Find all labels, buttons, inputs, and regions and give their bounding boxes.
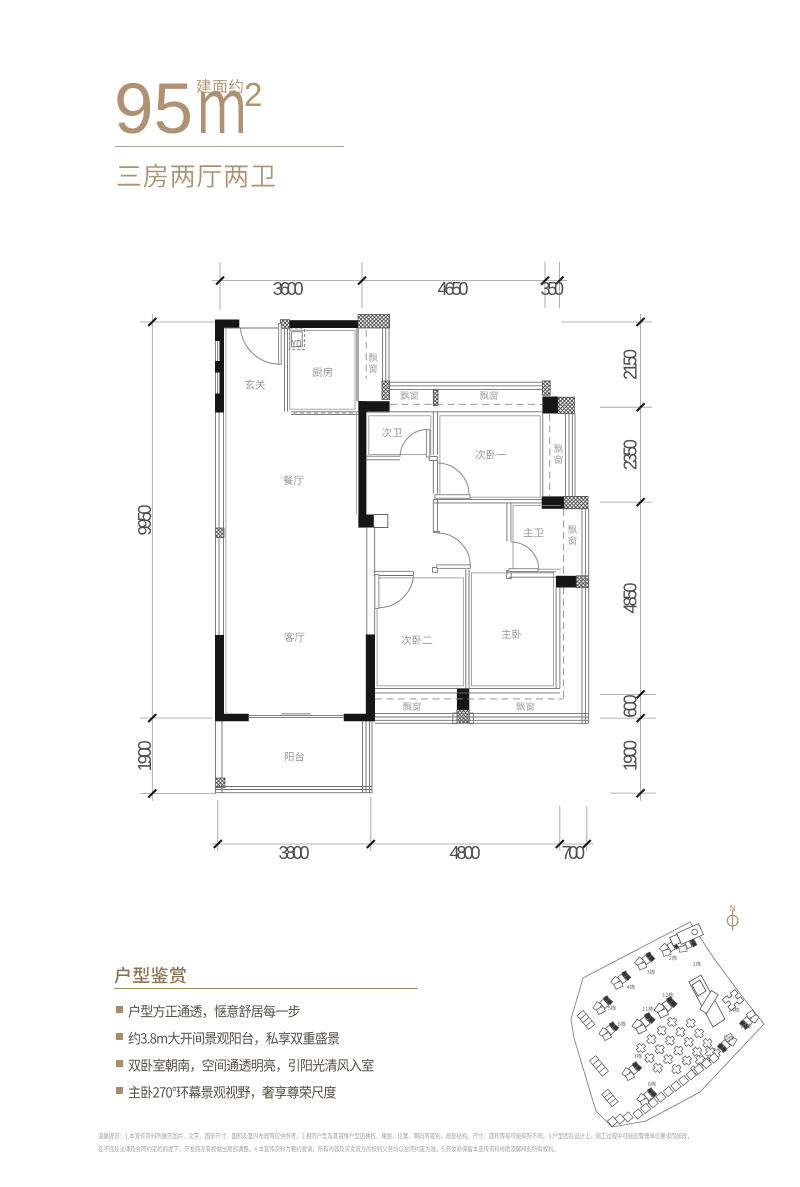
svg-text:9950: 9950 bbox=[135, 505, 155, 536]
svg-text:1900: 1900 bbox=[135, 740, 155, 771]
svg-text:4800: 4800 bbox=[450, 843, 481, 863]
svg-text:YD: YD bbox=[292, 338, 302, 350]
svg-text:4650: 4650 bbox=[438, 279, 469, 299]
svg-text:4850: 4850 bbox=[621, 583, 641, 614]
svg-text:350: 350 bbox=[541, 279, 565, 299]
svg-text:2150: 2150 bbox=[621, 349, 641, 380]
svg-text:1900: 1900 bbox=[621, 740, 641, 771]
svg-text:700: 700 bbox=[562, 843, 586, 863]
svg-text:2350: 2350 bbox=[621, 439, 641, 470]
svg-text:600: 600 bbox=[621, 694, 641, 718]
svg-text:N: N bbox=[730, 904, 736, 913]
svg-text:3600: 3600 bbox=[273, 279, 304, 299]
svg-text:3800: 3800 bbox=[279, 843, 310, 863]
